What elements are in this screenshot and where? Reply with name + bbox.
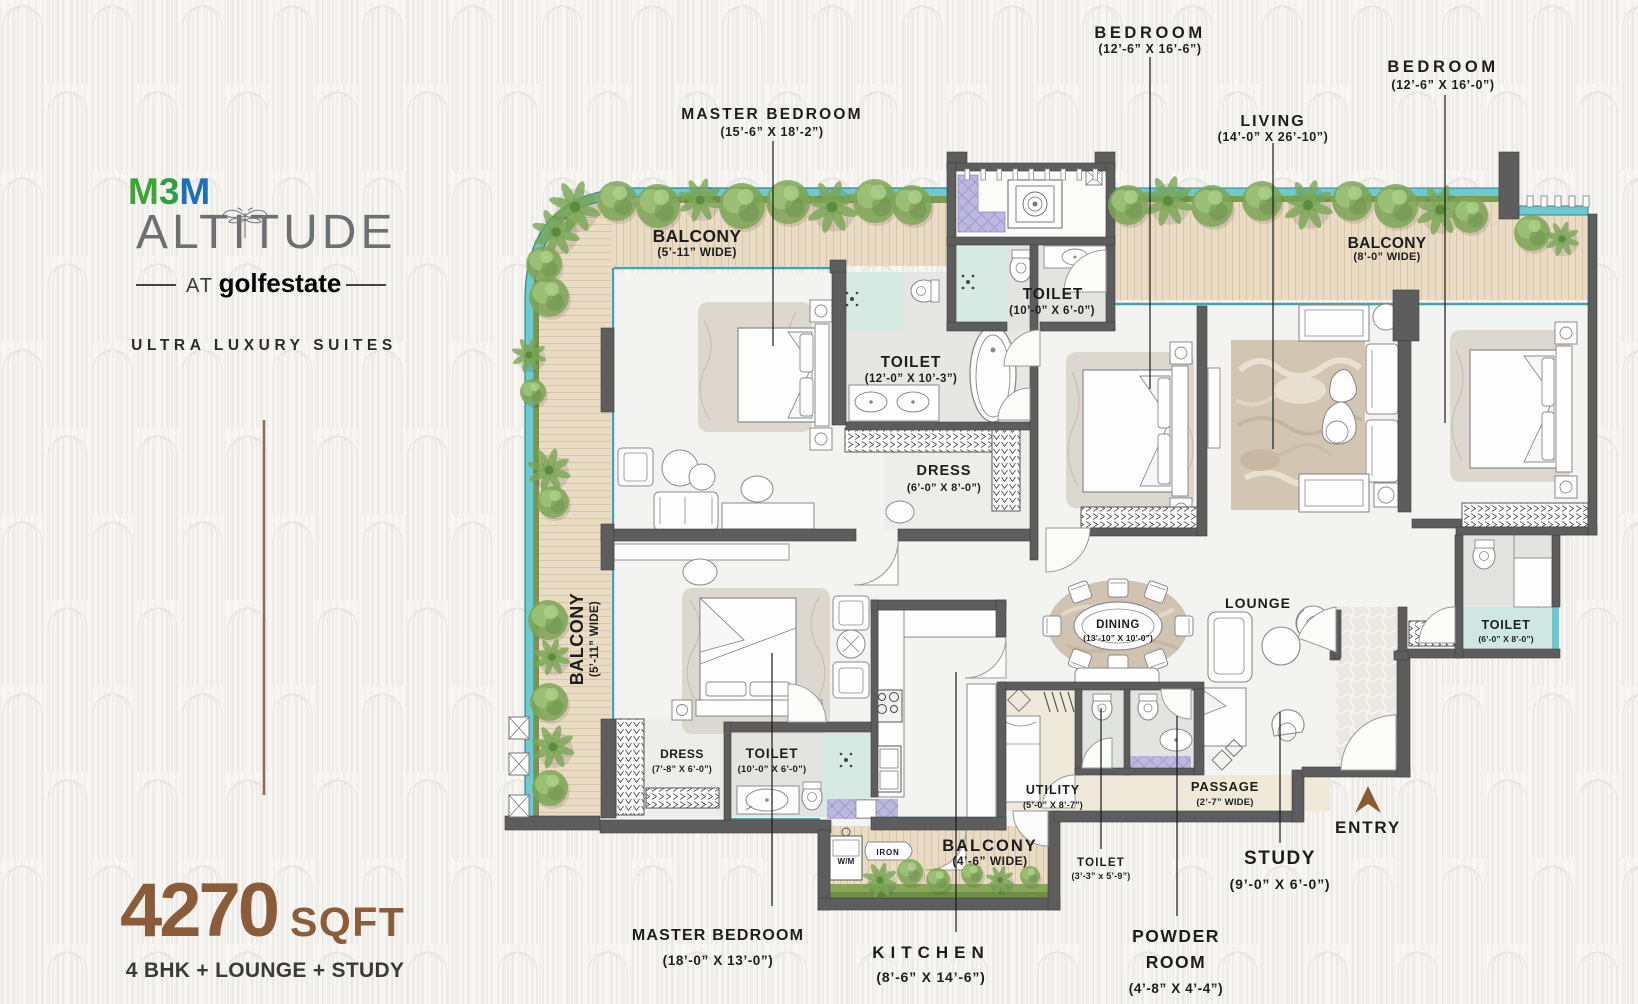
svg-text:(6’-0” X 8’-0”): (6’-0” X 8’-0”) (1478, 634, 1533, 644)
svg-text:TOILET: TOILET (1481, 618, 1530, 632)
svg-text:DRESS: DRESS (660, 747, 704, 761)
svg-text:SQFT: SQFT (290, 899, 405, 945)
svg-text:TOILET: TOILET (881, 354, 942, 371)
svg-text:(4’-8” X 4’-4”): (4’-8” X 4’-4”) (1129, 981, 1224, 996)
svg-text:(5’-11” WIDE): (5’-11” WIDE) (657, 245, 736, 259)
svg-text:(10’-0” X 6’-0”): (10’-0” X 6’-0”) (1009, 305, 1095, 317)
svg-text:TOILET: TOILET (746, 746, 799, 761)
svg-text:TOILET: TOILET (1077, 857, 1125, 869)
svg-text:MASTER BEDROOM: MASTER BEDROOM (632, 927, 804, 944)
svg-text:(5’-11” WIDE): (5’-11” WIDE) (589, 601, 601, 677)
svg-text:(13’-10” X 10’-0”): (13’-10” X 10’-0”) (1083, 633, 1153, 643)
svg-text:BALCONY: BALCONY (942, 837, 1038, 855)
svg-text:IRON: IRON (876, 848, 899, 857)
svg-text:STUDY: STUDY (1244, 848, 1316, 869)
svg-text:BEDROOM: BEDROOM (1094, 24, 1205, 42)
svg-text:(15’-6” X 18’-2”): (15’-6” X 18’-2”) (720, 125, 823, 139)
svg-text:(4’-6” WIDE): (4’-6” WIDE) (952, 854, 1027, 868)
svg-text:(18’-0” X 13’-0”): (18’-0” X 13’-0”) (663, 953, 774, 968)
svg-text:4270: 4270 (120, 868, 278, 953)
svg-text:TOILET: TOILET (1023, 286, 1084, 303)
svg-text:(8’-0” WIDE): (8’-0” WIDE) (1353, 251, 1420, 263)
svg-text:ENTRY: ENTRY (1335, 818, 1401, 837)
svg-text:(12’-0” X 10’-3”): (12’-0” X 10’-3”) (865, 373, 957, 385)
svg-text:(5’-0” X 8’-7”): (5’-0” X 8’-7”) (1023, 800, 1083, 810)
svg-text:(6’-0” X 8’-0”): (6’-0” X 8’-0”) (907, 482, 981, 494)
svg-text:W/M: W/M (837, 857, 854, 866)
svg-text:PASSAGE: PASSAGE (1191, 779, 1259, 794)
svg-text:MASTER BEDROOM: MASTER BEDROOM (681, 106, 863, 123)
svg-text:(9’-0” X 6’-0”): (9’-0” X 6’-0”) (1230, 876, 1331, 892)
svg-text:(12’-6” X 16’-0”): (12’-6” X 16’-0”) (1391, 78, 1494, 92)
svg-text:UTILITY: UTILITY (1026, 783, 1080, 797)
svg-text:(2’-7” WIDE): (2’-7” WIDE) (1196, 797, 1253, 808)
svg-text:golfestate: golfestate (219, 268, 342, 298)
svg-text:ULTRA LUXURY SUITES: ULTRA LUXURY SUITES (131, 337, 397, 354)
svg-text:LOUNGE: LOUNGE (1225, 595, 1291, 611)
svg-text:BALCONY: BALCONY (567, 593, 587, 686)
svg-text:LIVING: LIVING (1240, 113, 1305, 130)
svg-text:(7’-8” X 6’-0”): (7’-8” X 6’-0”) (652, 764, 712, 774)
svg-text:POWDER: POWDER (1132, 926, 1220, 946)
svg-text:DINING: DINING (1096, 619, 1140, 631)
svg-text:AT: AT (186, 275, 214, 297)
svg-text:ROOM: ROOM (1146, 952, 1206, 972)
svg-text:DRESS: DRESS (917, 463, 972, 479)
svg-text:(14’-0” X 26’-10”): (14’-0” X 26’-10”) (1218, 130, 1329, 144)
svg-text:(10’-0” X 6’-0”): (10’-0” X 6’-0”) (738, 764, 807, 775)
svg-text:(12’-6” X 16’-6”): (12’-6” X 16’-6”) (1098, 42, 1201, 56)
svg-text:(8’-6” X 14’-6”): (8’-6” X 14’-6”) (876, 969, 985, 985)
svg-text:(3’-3” x 5’-9”): (3’-3” x 5’-9”) (1071, 871, 1130, 881)
svg-text:BEDROOM: BEDROOM (1387, 58, 1498, 76)
svg-text:BALCONY: BALCONY (653, 226, 742, 246)
svg-text:KITCHEN: KITCHEN (872, 943, 990, 962)
svg-text:BALCONY: BALCONY (1348, 235, 1427, 252)
svg-text:4 BHK + LOUNGE + STUDY: 4 BHK + LOUNGE + STUDY (126, 959, 404, 982)
